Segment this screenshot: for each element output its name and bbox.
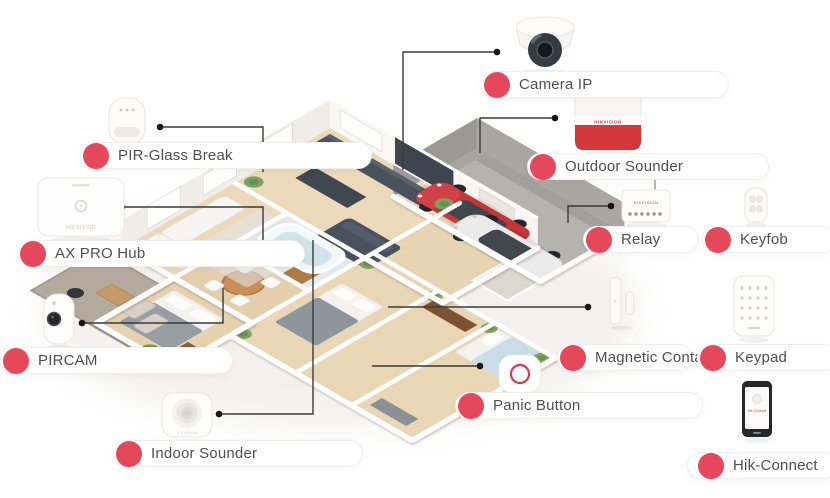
ax-pro-hub-device: HIKVISION xyxy=(36,176,126,244)
red-dot xyxy=(83,143,109,169)
connector-relay xyxy=(568,206,611,223)
diagram-canvas: HIKVISION HIKVISION HIKVISION xyxy=(0,0,830,498)
keyfob-remote-icon xyxy=(742,186,770,228)
hik-connect-device: Hik-Connect xyxy=(738,380,776,444)
label-pircam: PIRCAM xyxy=(0,347,233,374)
label-pir-glass-break: PIR-Glass Break xyxy=(80,142,372,169)
keypad-icon xyxy=(731,274,777,344)
alarm-hub-icon: HIKVISION xyxy=(36,176,126,244)
magnetic-contact-device xyxy=(606,276,638,332)
door-magnet-icon xyxy=(606,276,638,332)
red-dot xyxy=(116,441,142,467)
indoor-sounder-device: HIKVISION xyxy=(158,391,216,447)
label-indoor-sounder: Indoor Sounder xyxy=(113,440,363,467)
red-dot xyxy=(484,72,510,98)
camera-ip-device xyxy=(502,14,588,78)
smartphone-app-icon: Hik-Connect xyxy=(738,380,776,444)
connector-pircam xyxy=(82,288,223,323)
relay-module-icon: HIKVISION xyxy=(618,174,674,228)
indoor-siren-icon: HIKVISION xyxy=(158,391,216,447)
label-keypad: Keypad xyxy=(697,344,830,371)
label-keyfob: Keyfob xyxy=(702,226,830,253)
phone-screen-text: Hik-Connect xyxy=(748,409,767,413)
label-outdoor-sounder: Outdoor Sounder xyxy=(527,153,769,180)
connector-camera-ip xyxy=(403,52,497,170)
sounder-brand-text: HIKVISION xyxy=(594,120,622,125)
relay-device: HIKVISION xyxy=(618,174,674,228)
red-dot xyxy=(700,345,726,371)
pircam-device xyxy=(40,292,78,352)
label-magnetic-contact: Magnetic Contact xyxy=(557,344,693,371)
red-dot xyxy=(705,227,731,253)
keypad-device xyxy=(731,274,777,344)
label-panic-button: Panic Button xyxy=(455,392,703,419)
label-camera-ip: Camera IP xyxy=(481,71,729,98)
label-relay: Relay xyxy=(583,226,699,253)
label-ax-pro-hub: AX PRO Hub xyxy=(17,240,305,267)
hub-brand-text: HIKVISION xyxy=(66,225,96,231)
relay-brand-text: HIKVISION xyxy=(634,200,659,205)
pir-camera-icon xyxy=(40,292,78,352)
keyfob-device xyxy=(742,186,770,228)
red-dot xyxy=(20,241,46,267)
red-dot xyxy=(698,453,724,479)
label-hik-connect: Hik-Connect xyxy=(687,452,830,479)
connector-outdoor-sounder xyxy=(480,118,555,153)
red-dot xyxy=(530,154,556,180)
red-dot xyxy=(560,345,586,371)
red-dot xyxy=(458,393,484,419)
red-dot xyxy=(3,348,29,374)
red-dot xyxy=(586,227,612,253)
dome-camera-icon xyxy=(502,14,588,78)
indoor-sounder-brand-text: HIKVISION xyxy=(177,431,198,435)
